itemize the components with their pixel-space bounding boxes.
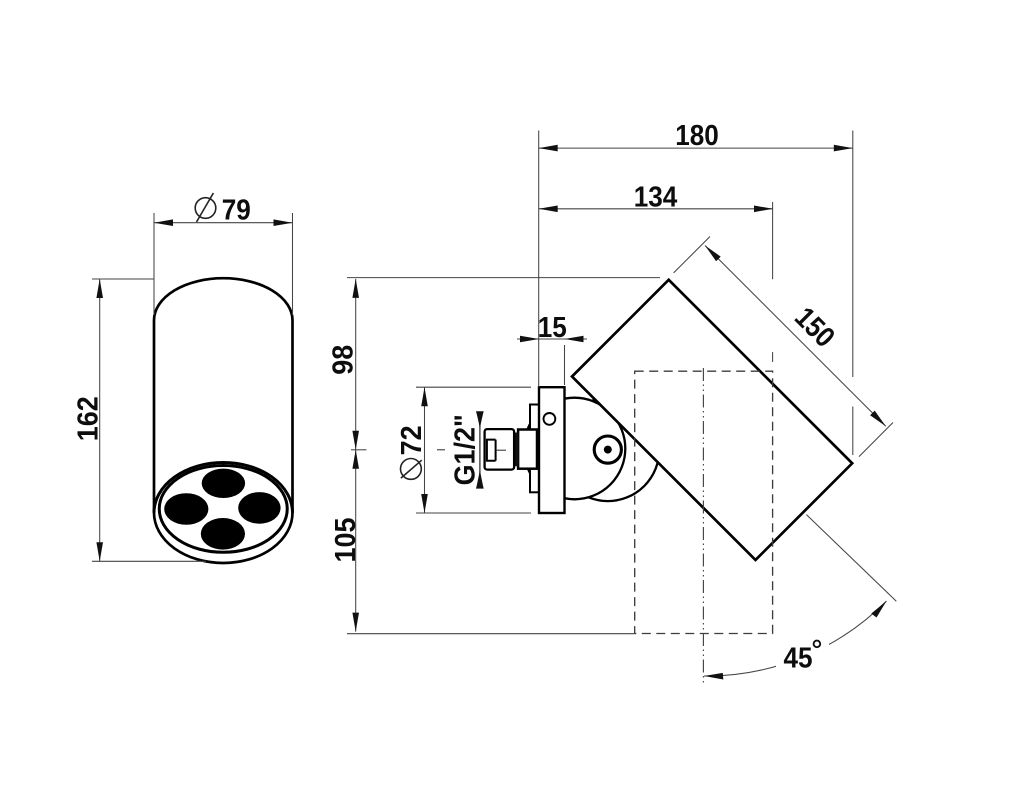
svg-text:162: 162	[72, 396, 104, 441]
svg-text:72: 72	[395, 425, 427, 455]
svg-text:G1/2": G1/2"	[449, 414, 481, 485]
svg-text:15: 15	[538, 311, 567, 344]
svg-text:79: 79	[222, 193, 251, 226]
svg-text:45: 45	[783, 641, 812, 674]
svg-text:105: 105	[329, 518, 361, 563]
svg-text:180: 180	[675, 119, 719, 152]
svg-text:98: 98	[327, 345, 359, 375]
svg-text:134: 134	[634, 180, 678, 213]
